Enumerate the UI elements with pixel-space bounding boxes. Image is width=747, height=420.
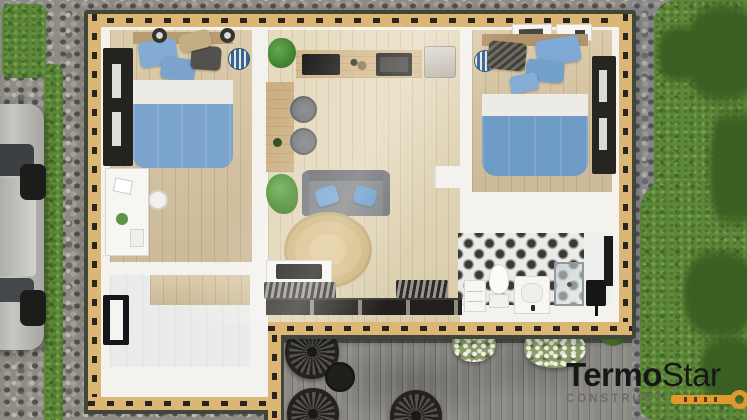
wardrobe-panel <box>112 112 121 146</box>
faucet <box>531 305 535 311</box>
duvet-blue <box>482 116 588 176</box>
wall-panel-dark <box>604 236 613 286</box>
car-wheel <box>20 164 46 200</box>
shower-drain <box>567 282 572 287</box>
wall-lamp <box>220 28 235 43</box>
sink-basin <box>521 283 543 303</box>
house-frame-bottom-left <box>88 397 270 410</box>
bathroom-drawer-unit <box>464 280 486 312</box>
round-wall-decal <box>228 48 250 70</box>
chair-hub <box>307 347 317 357</box>
brand-name-primary: Termo <box>566 356 662 393</box>
bed-right <box>482 34 588 176</box>
chair-hub <box>411 411 421 420</box>
door-opening <box>434 166 462 188</box>
parked-car <box>0 104 44 350</box>
dining-chair <box>290 96 317 123</box>
shrub <box>658 18 700 90</box>
floor-plant <box>266 174 298 214</box>
pillow-blue-small <box>508 71 539 94</box>
paper-sheet <box>113 177 134 194</box>
toilet-tank <box>489 294 509 308</box>
wardrobe-panel <box>599 118 607 150</box>
toilet-bowl <box>489 264 509 294</box>
utility-wood-wall <box>150 275 250 305</box>
brand-logo: TermoStar CONSTRUCT <box>566 358 746 416</box>
kitchen-utensils <box>348 56 368 72</box>
window-pane <box>110 300 123 340</box>
small-plant <box>116 213 128 225</box>
dining-counter <box>266 82 294 172</box>
chair-hub <box>308 409 318 419</box>
sofa-armrest <box>302 172 309 216</box>
drawer-line <box>467 291 483 292</box>
car-wheel <box>20 290 46 326</box>
brand-name-secondary: Star <box>662 356 721 393</box>
brand-subtitle: CONSTRUCT <box>566 393 665 405</box>
sink-basin <box>380 57 408 72</box>
house-frame-bottom-main <box>268 322 632 335</box>
slatted-bench <box>264 282 336 299</box>
fridge <box>424 46 456 78</box>
house-frame-deck-left <box>268 335 281 420</box>
brand-name: TermoStar <box>566 358 746 391</box>
house-frame-right <box>619 14 632 335</box>
wardrobe-right <box>592 56 616 174</box>
house-frame-left <box>88 14 101 410</box>
black-radiator-panel <box>586 280 606 306</box>
utility-window-frame <box>103 295 129 345</box>
desk-chair <box>148 190 168 210</box>
drawer-line <box>467 301 483 302</box>
brand-key-icon <box>671 395 735 404</box>
cooktop <box>302 54 340 75</box>
paper-sheet <box>130 229 144 247</box>
dining-chair <box>290 128 317 155</box>
wardrobe-left <box>103 48 133 166</box>
round-side-table <box>325 362 355 392</box>
kitchen-sink <box>376 53 412 76</box>
pillow-striped <box>487 40 528 72</box>
glass-shower <box>554 262 584 306</box>
vanity-sink <box>514 276 550 314</box>
tv <box>276 264 322 279</box>
grass-patch-top-left <box>2 4 46 78</box>
cup-on-counter <box>273 138 282 147</box>
wall-lamp <box>152 28 167 43</box>
radiator-stem <box>595 306 598 316</box>
kitchen-counter <box>296 50 422 78</box>
glazed-window-wall <box>266 298 462 315</box>
grass-strip-left <box>44 64 63 420</box>
scene-floor-plan-render: TermoStar CONSTRUCT <box>0 0 747 420</box>
sofa-armrest <box>383 172 390 216</box>
desk-dresser-left <box>105 168 149 256</box>
wardrobe-panel <box>599 70 607 102</box>
wardrobe-panel <box>112 64 121 98</box>
sofa <box>302 170 390 216</box>
toilet <box>489 264 509 310</box>
brand-key-ring <box>730 390 747 409</box>
duvet-blue <box>133 104 233 168</box>
bed-left <box>133 32 233 168</box>
sofa-seat <box>302 181 390 216</box>
